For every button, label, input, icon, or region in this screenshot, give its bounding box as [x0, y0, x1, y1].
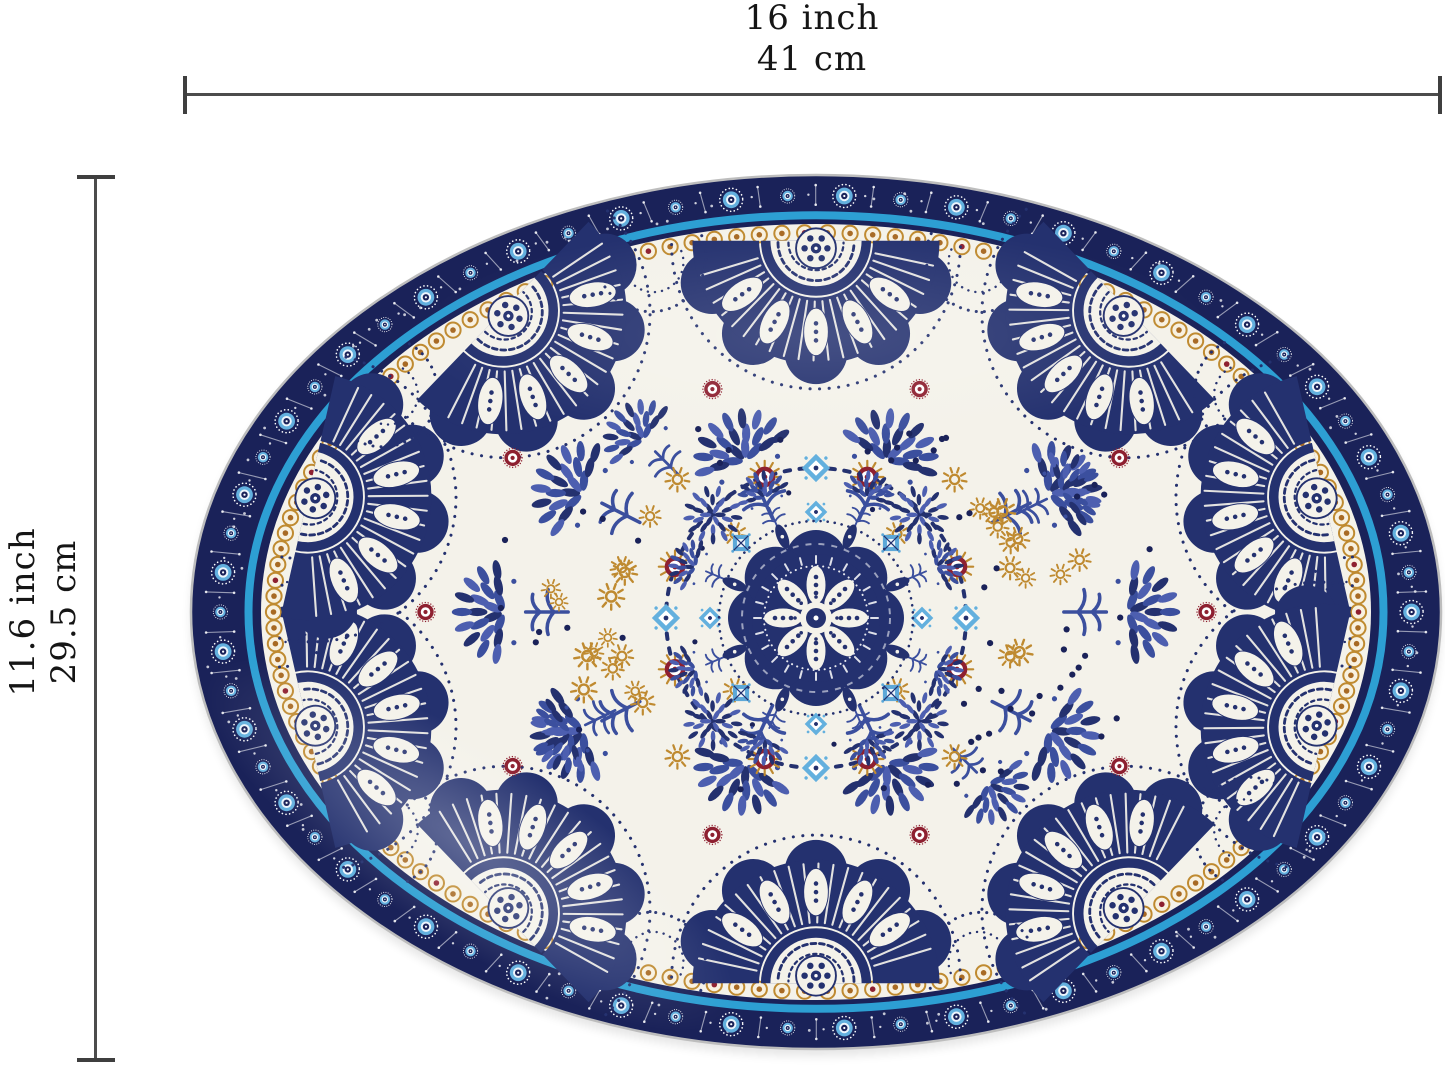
- oval-platter-photo: [0, 0, 1445, 1072]
- product-dimension-image: 16 inch 41 cm 11.6 inch 29.5 cm: [0, 0, 1445, 1072]
